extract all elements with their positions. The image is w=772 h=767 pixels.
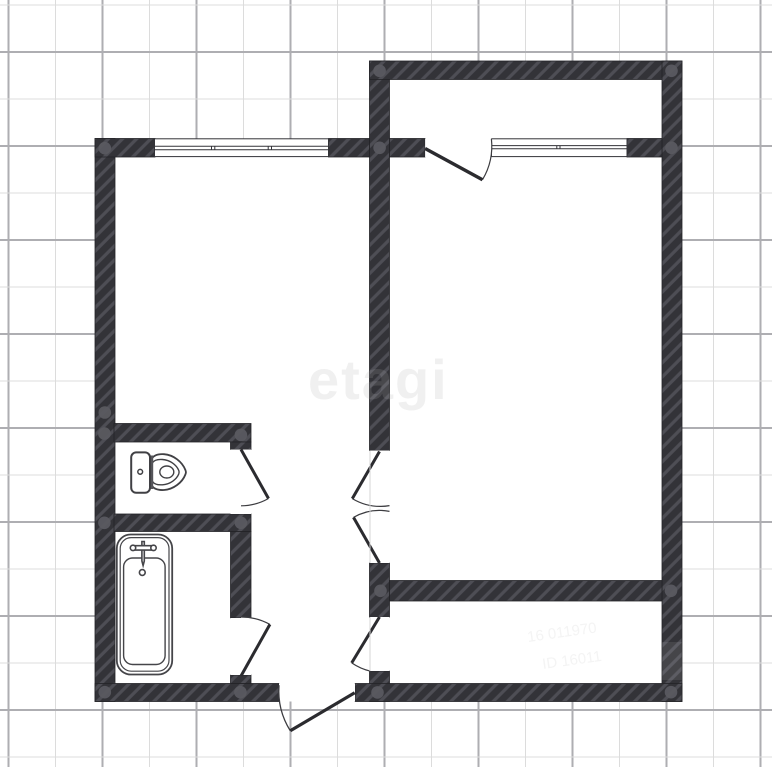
svg-text:etagi: etagi — [308, 348, 449, 411]
